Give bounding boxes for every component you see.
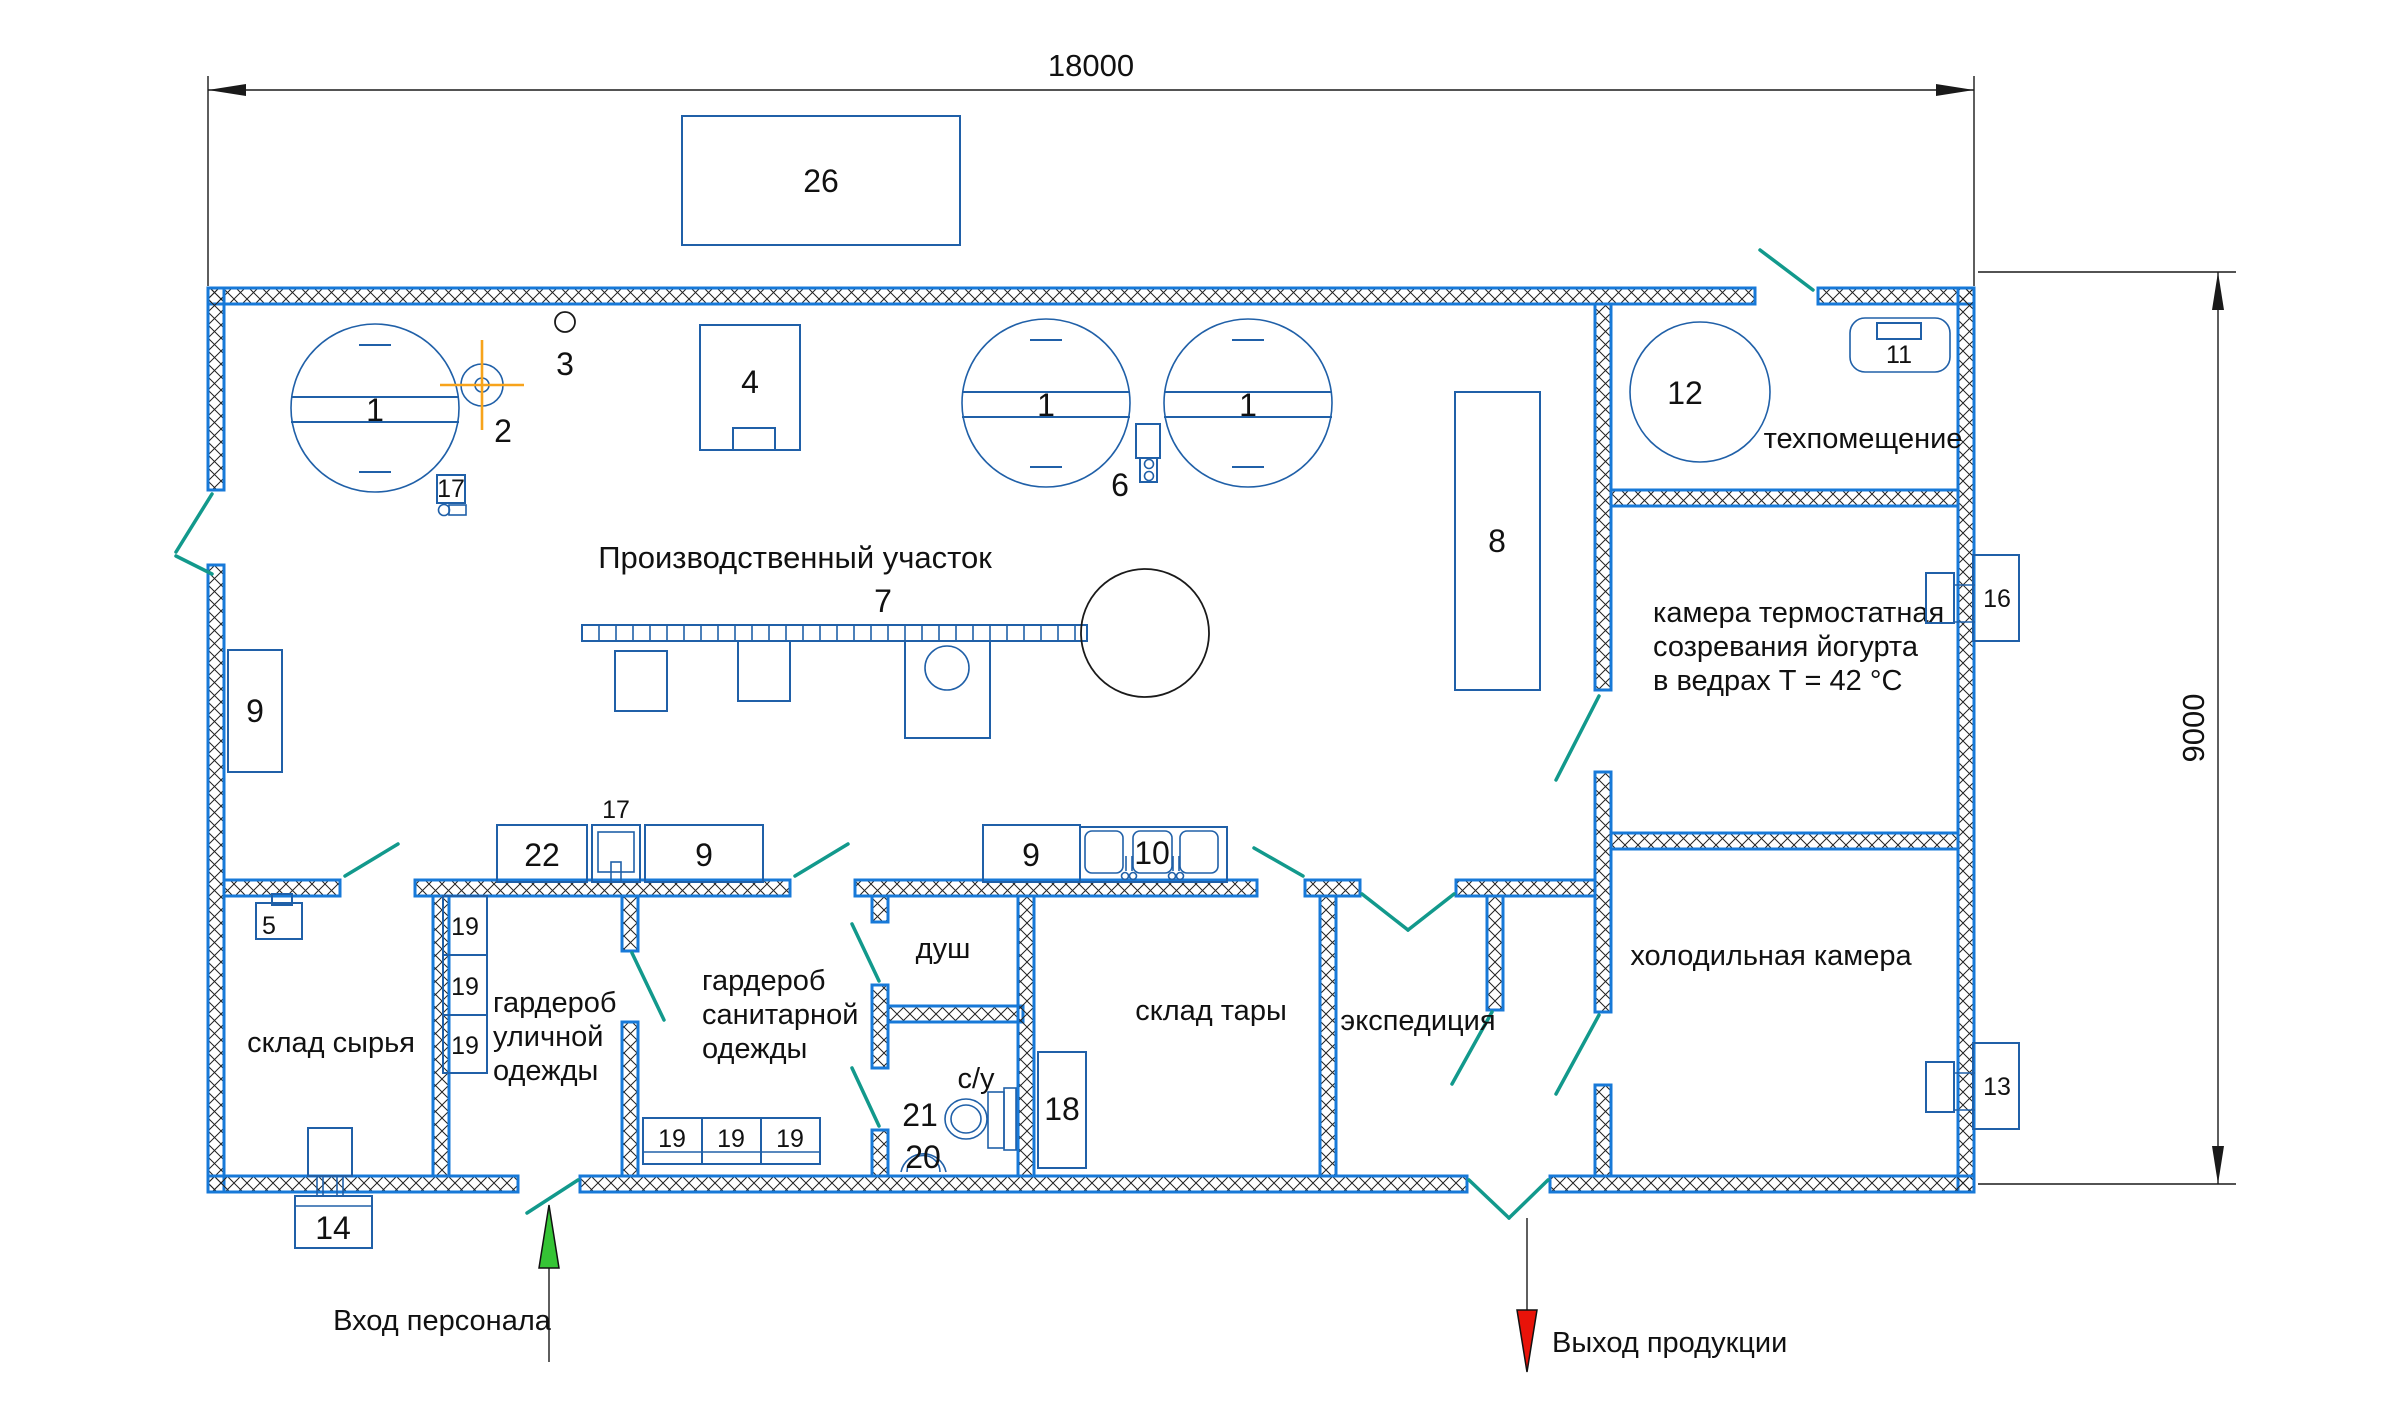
wall-san-shower [872,896,888,922]
room-san-label-2: санитарной [702,999,858,1031]
tech-room: техпомещение 12 11 [1630,318,1962,462]
room-production-label: Производственный участок [598,540,992,575]
equipment-9-label: 9 [1022,837,1040,873]
interior-walls [224,304,1958,1176]
equipment-8-label: 8 [1488,523,1506,559]
equipment-20-sink: 20 [901,1139,946,1175]
conveyor-station [738,641,790,701]
room-san-label-1: гардероб [702,965,825,997]
equipment-13-label: 13 [1983,1073,2011,1101]
entrance-flow: Вход персонала [333,1205,559,1362]
equipment-18: 18 [1038,1052,1086,1168]
room-containers-label: склад тары [1135,995,1287,1027]
equipment-9-table: 9 [983,825,1080,882]
wall-lockers [1456,880,1595,896]
wall-production-right [1595,304,1611,690]
equipment-22-label: 22 [524,837,560,873]
door-tech [1760,250,1813,290]
equipment-26: 26 [682,116,960,245]
door-expedition [1408,894,1454,930]
locker-19-label: 19 [658,1125,686,1153]
equipment-2-label: 2 [494,413,512,449]
wall-production-right [1595,1085,1611,1176]
equipment-17: 17 [437,475,466,516]
wall-left [208,288,224,490]
tank-label: 1 [1239,387,1257,423]
equipment-6: 6 [1111,424,1160,503]
equipment-18-label: 18 [1044,1091,1080,1127]
wall-bottom [1550,1176,1974,1192]
width-dimension-label: 18000 [1048,48,1134,83]
room-street-label-1: гардероб [493,987,616,1019]
rotary-table [1081,569,1209,697]
expedition-room: экспедиция [1340,1005,1495,1037]
wall-street-san [622,896,638,951]
equipment-9-label: 9 [246,693,264,729]
tank-1: 1 [291,324,459,492]
door-san-wardrobe [795,844,848,876]
equipment-10-sinks: 10 [1080,827,1227,882]
equipment-13: 13 [1926,1043,2019,1129]
entrance-arrow-icon [539,1205,559,1268]
locker-19-label: 19 [451,973,479,1001]
tank-1: 1 [1164,319,1332,487]
door-production-left [176,494,212,552]
wall-san-shower [872,1130,888,1176]
room-thermo-label-1: камера термостатная [1653,597,1944,629]
room-wc-label: с/у [957,1063,995,1095]
wall-thermo-cold [1611,833,1958,849]
wall-lockers [1305,880,1360,896]
wall-tech-bottom [1611,490,1958,506]
equipment-12-label: 12 [1667,375,1703,411]
equipment-5: 5 [256,894,302,940]
wall-san-shower [872,985,888,1068]
locker-19-label: 19 [451,1032,479,1060]
equipment-20-label: 20 [905,1139,941,1175]
equipment-21-label: 21 [902,1097,938,1133]
wall-street-san [622,1022,638,1176]
equipment-6-label: 6 [1111,467,1129,503]
shower-room: душ [916,933,971,965]
wall-raw-street [433,896,449,1176]
wall-containers-right [1320,896,1336,1176]
locker-19-label: 19 [451,913,479,941]
wall-bottom [208,1176,518,1192]
equipment-26-label: 26 [803,163,839,199]
toilet-icon [945,1088,1016,1150]
equipment-17-label: 17 [602,796,630,824]
equipment-4: 4 [700,325,800,450]
raw-warehouse: склад сырья 5 14 [247,894,415,1248]
locker-19-row: 19 19 19 [643,1118,820,1164]
tank-1: 1 [962,319,1130,487]
door-street-san [632,953,664,1020]
dim-arrow-icon [2212,1146,2224,1184]
wall-containers-left [1018,896,1034,1176]
dimension-height: 9000 [1978,272,2236,1184]
wall-top [208,288,1755,304]
equipment-12: 12 [1630,322,1770,462]
containers-warehouse: склад тары 18 [1038,995,1287,1168]
equipment-2: 2 [440,340,524,449]
tank-label: 1 [366,392,384,428]
wall-top [1818,288,1974,304]
conveyor-station [615,651,667,711]
exit-label: Выход продукции [1552,1327,1787,1359]
room-thermo-label-2: созревания йогурта [1653,631,1919,663]
height-dimension-label: 9000 [2176,694,2211,763]
equipment-16-label: 16 [1983,585,2011,613]
floor-plan: 18000 9000 26 [0,0,2403,1414]
locker-19-label: 19 [776,1125,804,1153]
wall-production-right [1595,772,1611,1012]
room-tech-label: техпомещение [1764,423,1963,455]
room-street-label-3: одежды [493,1055,598,1087]
door-containers [1254,848,1303,876]
wall-left [208,565,224,1192]
door-shower [852,924,879,981]
door-entrance [527,1180,578,1213]
tank-label: 1 [1037,387,1055,423]
equipment-11: 11 [1850,318,1950,372]
floor-plan-canvas: 18000 9000 26 [0,0,2403,1414]
exit-arrow-icon [1517,1310,1537,1372]
wc-room: с/у 21 20 [901,1063,1016,1175]
sanitary-wardrobe: гардероб санитарной одежды 19 19 19 [643,965,858,1164]
entrance-label: Вход персонала [333,1305,552,1337]
conveyor-7: 7 [582,569,1209,697]
room-shower-label: душ [916,933,971,965]
equipment-22: 22 [497,825,587,882]
room-street-label-2: уличной [493,1021,603,1053]
equipment-9-label: 9 [695,837,713,873]
dim-arrow-icon [208,84,246,96]
dim-arrow-icon [2212,272,2224,310]
equipment-8: 8 [1455,392,1540,690]
door-cold [1556,1015,1599,1094]
exit-flow: Выход продукции [1517,1218,1787,1372]
door-expedition [1362,894,1408,930]
room-cold-label: холодильная камера [1630,940,1912,972]
equipment-9-bench: 9 [645,825,763,882]
door-exit [1469,1180,1509,1218]
equipment-17-station: 17 [592,796,640,882]
wall-bottom [580,1176,1467,1192]
conveyor-station-with-motor [905,641,990,738]
equipment-5-label: 5 [262,912,276,940]
equipment-3: 3 [555,312,575,382]
door-wc [852,1068,879,1126]
locker-19-label: 19 [717,1125,745,1153]
room-raw-label: склад сырья [247,1027,415,1059]
door-exit [1509,1180,1548,1218]
dim-arrow-icon [1936,84,1974,96]
door-thermo [1556,696,1599,780]
equipment-9-rack: 9 [228,650,282,772]
equipment-10-label: 10 [1134,835,1170,871]
room-san-label-3: одежды [702,1033,807,1065]
production-area: Производственный участок 1 1 1 [228,312,1540,882]
equipment-3-label: 3 [556,346,574,382]
wall-expedition-right [1487,896,1503,1010]
wall-shower-wc [888,1006,1023,1022]
dimension-width: 18000 [208,48,1974,286]
equipment-4-label: 4 [741,364,759,400]
room-thermo-label-3: в ведрах Т = 42 °С [1653,665,1902,697]
room-expedition-label: экспедиция [1340,1005,1495,1037]
street-wardrobe: гардероб уличной одежды 19 19 19 [443,896,616,1087]
conveyor-7-label: 7 [874,583,892,619]
equipment-11-label: 11 [1886,341,1912,369]
equipment-14-label: 14 [315,1210,351,1246]
equipment-17-label: 17 [437,475,465,503]
door-raw [345,844,398,876]
